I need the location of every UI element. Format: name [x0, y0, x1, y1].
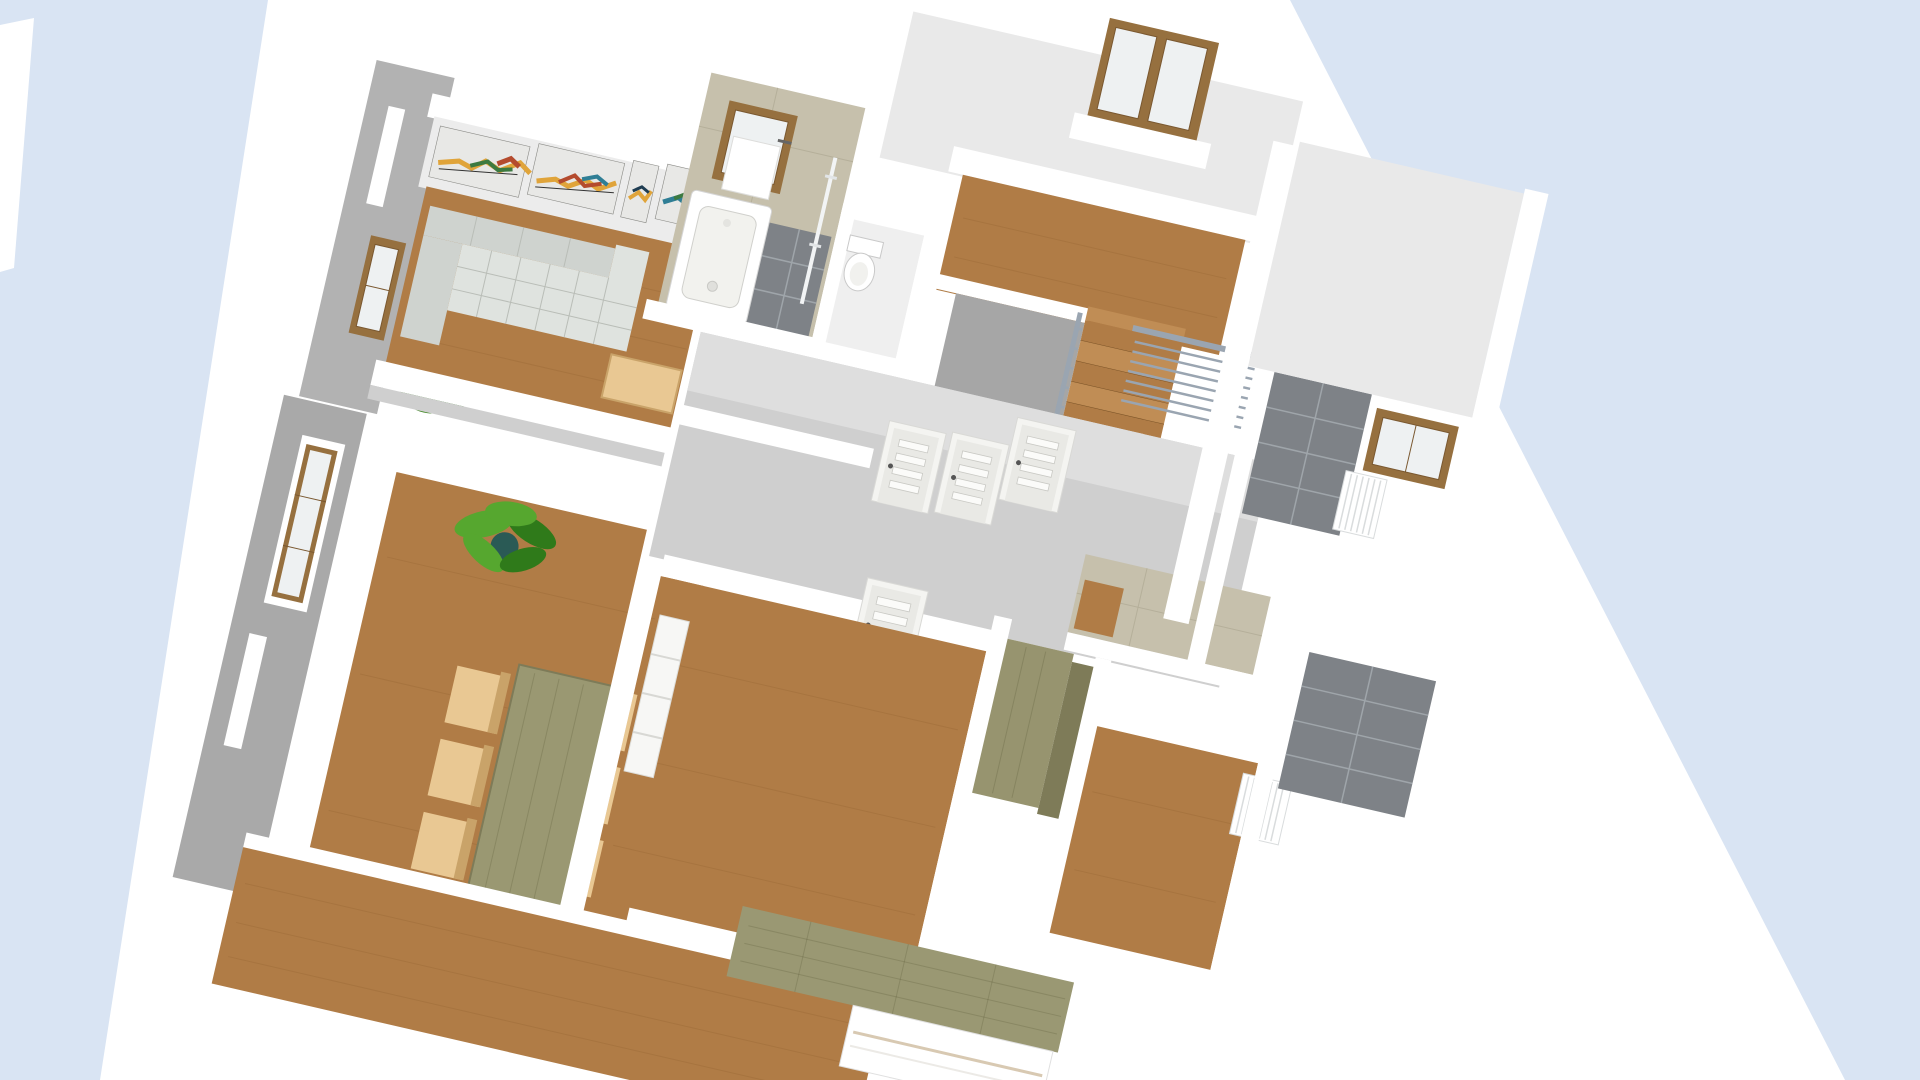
render-canvas — [0, 0, 1920, 1080]
floorplan-3d-viewport[interactable] — [0, 0, 1920, 1080]
